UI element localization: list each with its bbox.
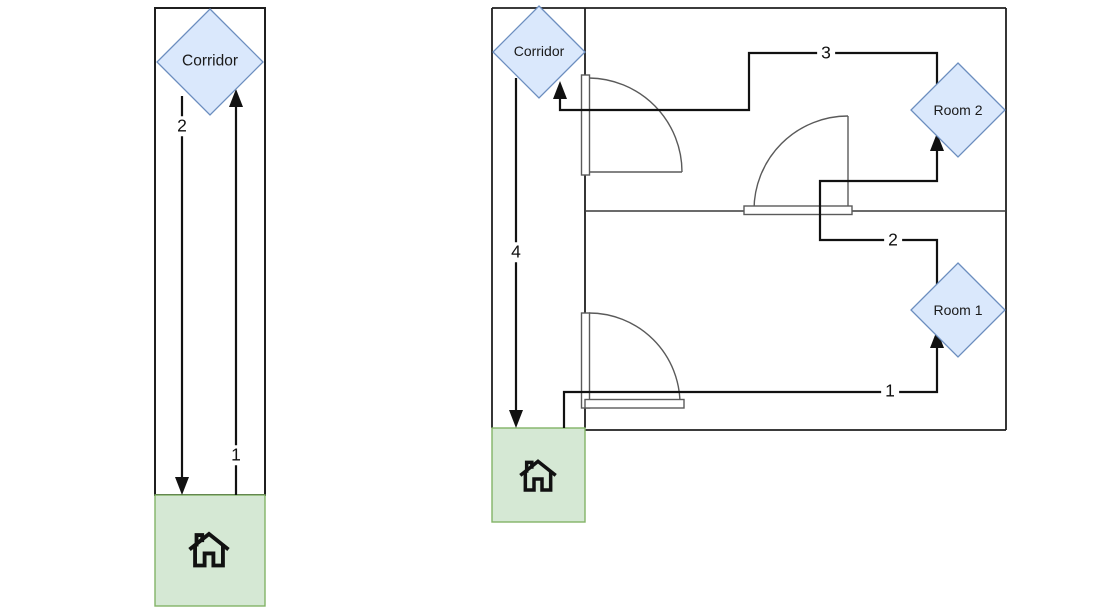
right-route-1 <box>564 330 944 428</box>
right-route-3 <box>553 53 937 110</box>
right-route-3-label: 3 <box>817 43 835 63</box>
right-door-middle <box>744 116 852 215</box>
left-corridor-label: Corridor <box>182 53 238 69</box>
left-home-box <box>155 495 265 606</box>
right-home-box <box>492 428 585 522</box>
right-corridor-label: Corridor <box>514 44 565 58</box>
right-route-1-label: 1 <box>881 381 899 401</box>
right-door-top-left <box>582 75 683 175</box>
left-route-2-label: 2 <box>173 116 191 136</box>
right-route-4-label: 4 <box>507 242 525 262</box>
right-route-2-label: 2 <box>884 230 902 250</box>
right-door-bottom-left <box>582 313 685 408</box>
right-room2-label: Room 2 <box>933 103 982 117</box>
right-room1-label: Room 1 <box>933 303 982 317</box>
diagram-canvas: Corridor 1 2 Corridor Room 2 Room 1 1 2 … <box>0 0 1116 613</box>
left-route-1-label: 1 <box>227 445 245 465</box>
